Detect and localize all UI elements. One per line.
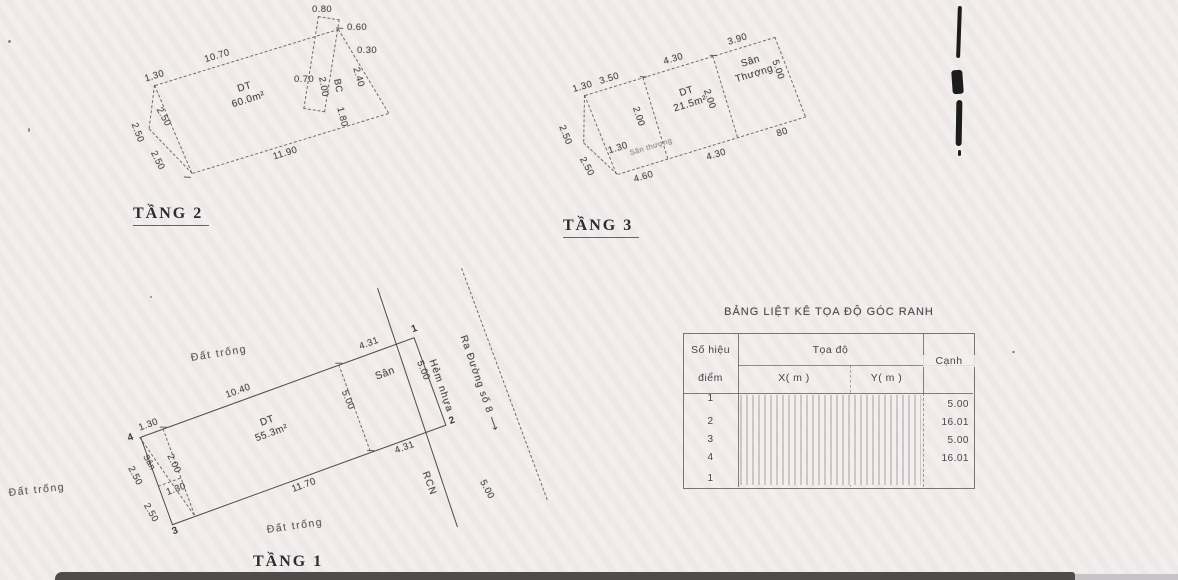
floor2-bal-dim-4: 0.70 [294,74,314,85]
table-edge-cell: 16.01 [925,417,969,428]
floor2-right-edge [338,29,389,114]
dimension-tick [335,363,342,364]
coordinate-table: BẢNG LIỆT KÊ TỌA ĐỘ GÓC RANH Số hiệu điể… [683,306,975,488]
floor3-area-block: DT 21.5m² [656,77,721,119]
floor2-bal-dim-2: 0.60 [347,22,367,33]
scan-speck [8,40,11,43]
street-width-dim: 5.00 [477,478,496,501]
table-header-point-line2: điểm [683,372,738,384]
dimension-tick [367,450,374,451]
table-point-cell: 4 [683,452,738,463]
floor1-dim-left-d: 2.50 [141,501,161,524]
floor2-bottom-edge [192,113,388,174]
floor1-empty-land-top: Đất trống [190,343,248,364]
street-road-label: Ra Đường số 8 ⟶ [458,334,501,433]
table-edge-divider-bottom [923,393,924,487]
table-col1-divider [738,333,739,487]
floor1-title: TẦNG 1 [253,553,329,573]
background-window-top-bar-light[interactable] [1075,574,1178,580]
table-header-y: Y( m ) [850,372,923,384]
table-point-cell: 2 [683,416,738,427]
table-point-cell: 1 [683,393,738,404]
floor2-area-block: DT 60.0m² [214,72,279,114]
table-header-coord: Tọa độ [738,344,923,356]
floor3-dim-div-1: 2.00 [630,105,647,128]
floor3-dim-left-b: 2.50 [577,155,596,178]
dimension-tick [184,177,191,178]
ink-mark [951,70,964,95]
floor3-left-wedge-a [583,95,585,142]
floor2-dim-left-b: 2.50 [129,121,146,144]
floor2-dim-left-c: 2.50 [148,149,167,172]
floor2-plan: 1.30 10.70 11.90 2.50 2.50 2.50 DT 60.0m… [155,27,374,176]
table-header-point-line1: Số hiệu [683,344,738,356]
redacted-coordinates [740,395,921,485]
background-window-top-bar[interactable] [55,572,1075,580]
ink-mark [958,150,961,156]
table-point-cell: 1 [683,473,738,484]
ink-mark [956,6,962,58]
floor1-point-4: 4 [126,432,135,444]
table-edge-cell: 5.00 [925,399,969,410]
table-header-edge: Cạnh [923,355,975,367]
floor2-left-wedge-a [149,85,155,129]
ink-mark [956,100,963,146]
scanned-cadastral-drawing: 1.30 10.70 11.90 2.50 2.50 2.50 DT 60.0m… [0,0,1178,580]
scan-speck [28,128,30,132]
floor2-bal-dim-3: 0.30 [357,45,377,56]
street-rcn-label: RCN [420,470,439,497]
floor3-dim-bottom-1: 4.60 [632,169,654,185]
floor1-point-2: 2 [448,415,457,427]
table-point-cell: 3 [683,434,738,445]
table-edge-cell: 5.00 [925,435,969,446]
floor1-point-3: 3 [171,525,180,537]
scan-speck [150,296,152,298]
floor3-dim-inner: 1.30 [607,140,629,156]
dimension-tick [160,427,167,428]
floor3-title: TẦNG 3 [563,217,639,238]
floor2-title: TẦNG 2 [133,205,209,226]
scan-speck [1012,351,1015,353]
floor1-plan: 4 1 2 3 1.30 10.40 4.31 Sân 2.50 2.00 1.… [140,338,444,524]
floor1-empty-land-left: Đất trống [8,481,66,499]
table-edge-cell: 16.01 [925,453,969,464]
table-header-x: X( m ) [738,372,850,384]
floor2-bal-dim-1: 0.80 [312,4,332,15]
floor1-dim-left-a: 2.50 [125,464,144,487]
floor2-bal-label-bc: BC [331,78,344,94]
floor1-point-1: 1 [410,323,419,335]
coordinate-table-title: BẢNG LIỆT KÊ TỌA ĐỘ GÓC RANH [683,306,975,318]
floor3-plan: 1.30 3.50 4.30 3.90 2.50 2.50 1.30 Sân t… [585,35,806,176]
floor3-dim-bottom-right: 80 [775,126,789,140]
floor3-dim-left-a: 2.50 [556,124,574,147]
floor1-empty-land-bottom: Đất trống [266,516,324,536]
floor3-dim-bottom-2: 4.30 [705,147,727,163]
